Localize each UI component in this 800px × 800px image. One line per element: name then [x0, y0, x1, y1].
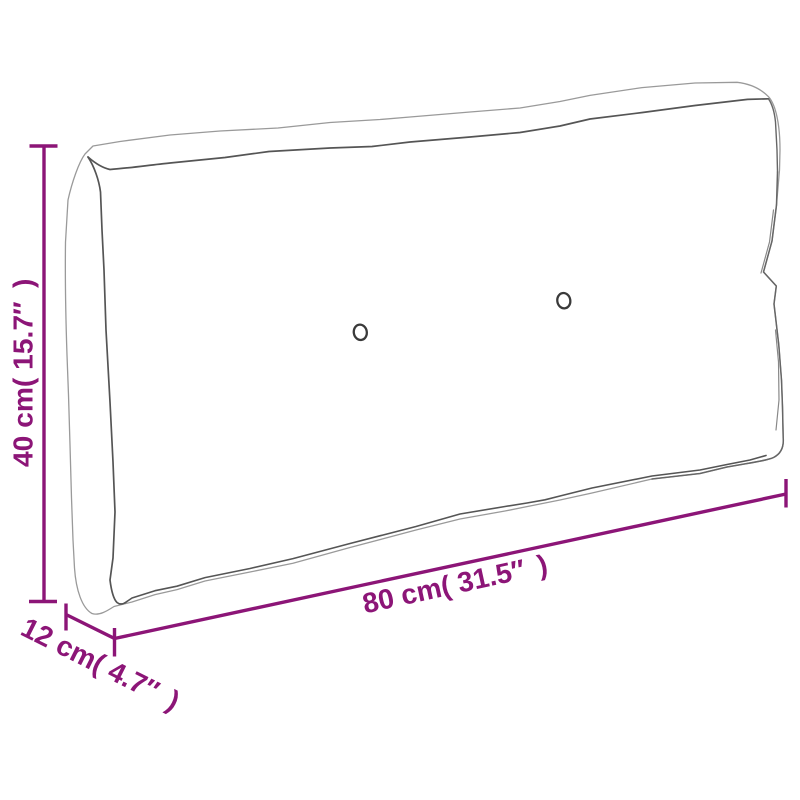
svg-text:40 cm( 15.7″ ): 40 cm( 15.7″ ) — [7, 279, 39, 467]
